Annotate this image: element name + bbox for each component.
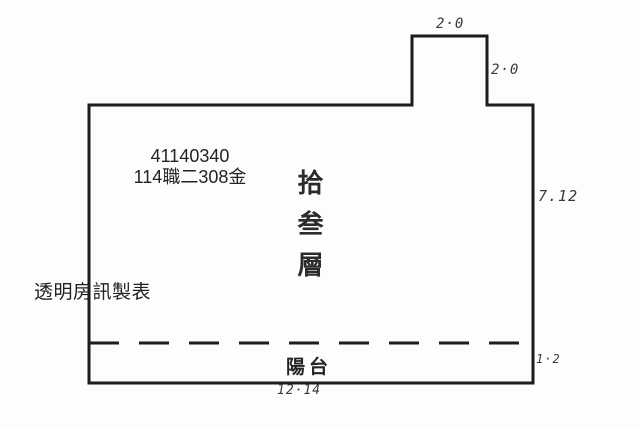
- watermark-text: 透明房訊製表: [34, 277, 151, 304]
- dimension-balcony-height: 1·2: [536, 352, 561, 366]
- dimension-bottom-width: 12·14: [277, 383, 321, 398]
- dimension-right-height: 7.12: [538, 187, 578, 205]
- balcony-label: 陽台: [286, 352, 332, 379]
- dimension-notch-width: 2·0: [436, 16, 464, 32]
- unit-info-block: 41140340 114職二308金: [110, 146, 270, 188]
- unit-label: 114職二308金: [110, 167, 270, 188]
- dimension-notch-height: 2·0: [491, 62, 519, 78]
- floor-plan-page: 41140340 114職二308金 拾叁層 陽台 透明房訊製表 2·0 2·0…: [0, 0, 640, 428]
- unit-code: 41140340: [110, 146, 270, 167]
- floor-label: 拾叁層: [293, 169, 323, 292]
